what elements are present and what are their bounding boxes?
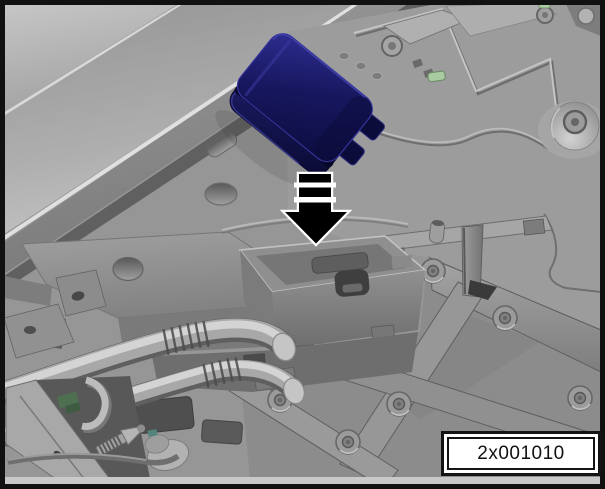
- bolt-hole: [493, 306, 517, 330]
- illustration-canvas: [0, 0, 605, 489]
- bolt-hole: [387, 392, 411, 416]
- label-box: 2x001010: [441, 431, 601, 476]
- green-clip: [428, 71, 446, 82]
- arrow-stripe: [294, 183, 336, 188]
- floor-bolt: [382, 36, 402, 56]
- bolt-hole: [336, 430, 360, 454]
- bolt-hole: [568, 386, 592, 410]
- floor-bolt: [537, 7, 553, 23]
- figure: 2x001010: [0, 0, 605, 489]
- plate-hole: [113, 258, 143, 281]
- label-inner-border: 2x001010: [447, 437, 595, 470]
- arrow-stripe: [294, 197, 336, 203]
- bottom-edge-strip: [4, 477, 601, 485]
- latch-opening: [334, 269, 370, 298]
- image-code-label: 2x001010: [477, 443, 564, 465]
- connector: [201, 420, 242, 445]
- oval-hole: [205, 183, 237, 205]
